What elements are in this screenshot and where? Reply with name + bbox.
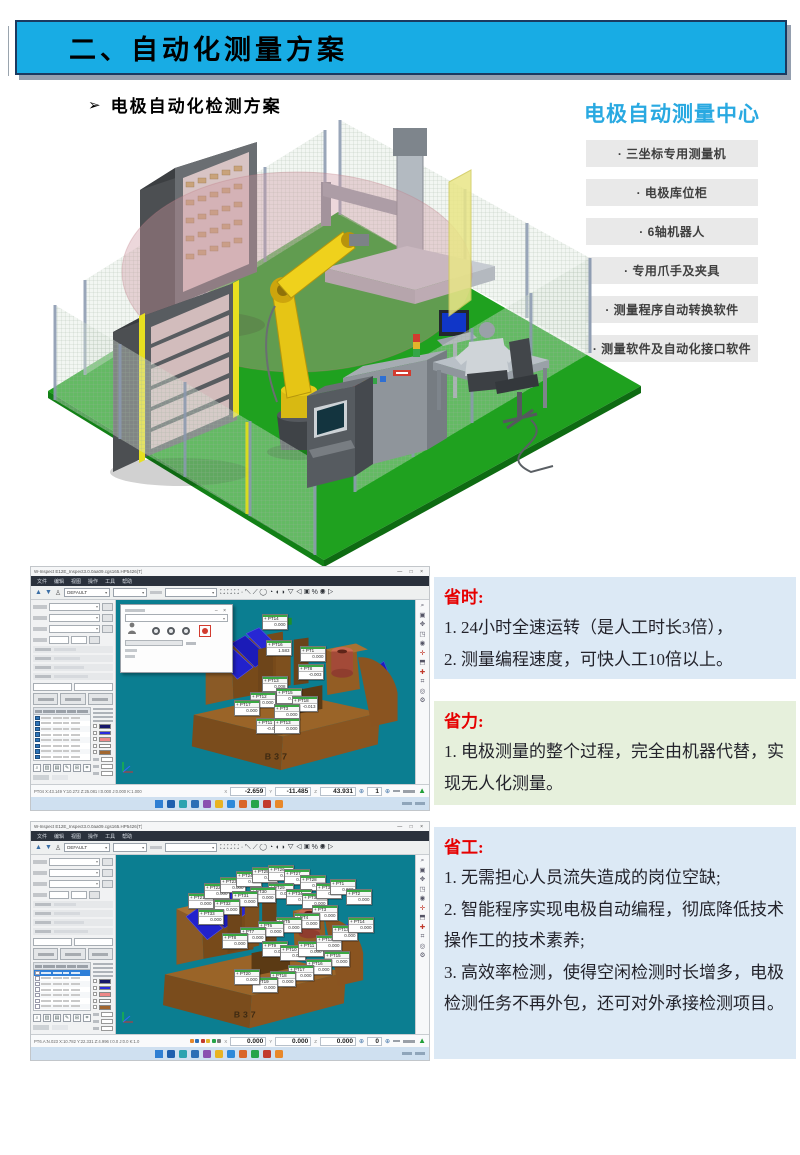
section-title: 二、自动化测量方案 (17, 28, 348, 67)
row-checkbox[interactable] (35, 732, 40, 737)
color-row (93, 986, 113, 991)
color-checkbox[interactable] (93, 750, 97, 754)
taskbar-app-icon[interactable] (155, 1050, 163, 1058)
results-area (33, 707, 113, 761)
cell-text (53, 1000, 62, 1002)
menu-item[interactable]: 帮助 (122, 833, 132, 840)
tip-combo[interactable]: ▾ (113, 843, 147, 852)
table-side-panel (93, 962, 113, 1011)
point-name: + PT16 (267, 641, 291, 648)
panel-tab[interactable] (52, 1025, 68, 1030)
button-label (65, 953, 81, 956)
coordinate-value: 0.000 (320, 1037, 356, 1046)
color-row (93, 999, 113, 1004)
pan-icon[interactable]: ✥ (420, 622, 425, 628)
cell-text (63, 750, 69, 752)
button-label (65, 698, 81, 701)
point-deviation: 0.000 (235, 977, 259, 984)
row-checkbox[interactable] (35, 1004, 40, 1009)
color-swatch (99, 1005, 111, 1010)
taskbar-app-icon[interactable] (167, 1050, 175, 1058)
color-swatch (99, 999, 111, 1004)
taskbar-app-icon[interactable] (263, 800, 271, 808)
cell-text (53, 739, 62, 741)
program-combo[interactable]: ▾ (125, 614, 228, 622)
color-checkbox[interactable] (93, 724, 97, 728)
info-row (33, 673, 113, 680)
zoom-icon[interactable]: ⌕ (421, 603, 425, 609)
row-checkbox[interactable] (35, 993, 40, 998)
dialog-titlebar: – × (125, 607, 228, 614)
play-control-button[interactable] (152, 627, 160, 635)
panel-tool-icon[interactable]: ▤ (53, 764, 61, 772)
panel-tool-icon[interactable]: ⌕ (33, 1014, 41, 1022)
pan-icon[interactable]: ✥ (420, 877, 425, 883)
status-readout: PT04 X:43.149 Y:10.272 Z:25.081 I:0.000 … (34, 789, 221, 794)
cell-3d-illustration (25, 120, 643, 567)
measure-point-label: + PT140.000 (348, 917, 374, 933)
info-label (35, 657, 51, 660)
nav-arrow-icon[interactable]: ▼ (45, 589, 52, 596)
benefit-box-save-labor: 省工: 1. 无需担心人员流失造成的岗位空缺; 2. 智能程序实现电极自动编程，… (434, 827, 796, 1059)
benefit-line: 1. 24小时全速运转（是人工时长3倍）， (444, 612, 784, 644)
cell-text (71, 717, 80, 719)
probe-icon[interactable]: ✛ (420, 651, 425, 657)
row-checkbox[interactable] (35, 749, 40, 754)
cell-text (63, 717, 69, 719)
tray-text (402, 1052, 412, 1055)
info-label (35, 903, 51, 906)
benefit-line: 2. 测量编程速度，可快人工10倍以上。 (444, 644, 784, 676)
field-button[interactable] (102, 603, 113, 611)
taskbar-app-icon[interactable] (155, 800, 163, 808)
field-button[interactable] (89, 891, 100, 899)
report-icon[interactable]: ⌗ (421, 679, 425, 685)
window-controls[interactable]: — □ × (397, 824, 426, 830)
measure-progress-dialog: – ×▾ (120, 604, 233, 673)
alarm-bell-icon[interactable]: ▲ (418, 787, 426, 795)
panel-tool-icon[interactable]: ⌗ (83, 1014, 91, 1022)
point-deviation: 0.000 (263, 622, 287, 629)
panel-icon-row: ⌕▥▤✎⊞⌗ (33, 763, 113, 773)
color-checkbox[interactable] (93, 1005, 97, 1009)
taskbar-app-icon[interactable] (275, 800, 283, 808)
gear-icon[interactable]: ⚙ (420, 953, 426, 959)
dialog-close-icon[interactable]: – × (215, 608, 228, 614)
point-name: + PT8 (223, 934, 247, 941)
row-checkbox[interactable] (35, 987, 40, 992)
tip-combo[interactable]: ▾ (113, 588, 147, 597)
main-toolbar: ▲▼♙DEFAULT▾▾▾⛶⛶⛶·↖⟋◯◔◖◗▽◁▣%◉▷ (31, 841, 429, 855)
zoom-icon[interactable]: ⌕ (421, 858, 425, 864)
window-body: ▾▾▾⌕▥▤✎⊞⌗ B37 + PT140.000+ PT161.583+ PT… (31, 600, 429, 784)
side-mini-button[interactable] (93, 708, 113, 710)
axis-letter: Z (314, 1039, 317, 1044)
side-mini-button[interactable] (93, 967, 113, 969)
cell-text (71, 994, 80, 996)
param-field-row (33, 635, 113, 644)
cell-text (63, 734, 69, 736)
taskbar-app-icon[interactable] (191, 800, 199, 808)
alarm-bell-icon[interactable]: ▲ (418, 1037, 426, 1045)
target-icon[interactable]: ◎ (420, 689, 426, 695)
panel-tab-active[interactable] (33, 1025, 49, 1030)
color-checkbox[interactable] (93, 744, 97, 748)
section-icon[interactable]: ⬒ (419, 660, 425, 666)
field-button[interactable] (102, 625, 113, 633)
field-dropdown[interactable]: ▾ (49, 614, 100, 622)
graphics-viewport[interactable]: B37 + PT210.000+ PT220.000+ PT230.000+ P… (116, 855, 415, 1034)
probe-count: 1 (367, 787, 382, 796)
field-label (33, 860, 47, 864)
toolbar-label (150, 591, 162, 594)
shade-icon[interactable]: ◉ (420, 641, 426, 647)
taskbar-tray (402, 802, 425, 805)
probe-icon[interactable]: ✛ (420, 906, 425, 912)
point-deviation: 0.000 (317, 943, 341, 950)
color-row (93, 750, 113, 755)
yellow-screen-panel (449, 170, 471, 316)
taskbar-app-icon[interactable] (191, 1050, 199, 1058)
table-header (34, 708, 90, 715)
field-input[interactable] (49, 891, 69, 899)
field-input[interactable] (49, 636, 69, 644)
color-checkbox[interactable] (93, 979, 97, 983)
target-icon[interactable]: ◎ (420, 944, 426, 950)
report-button[interactable] (88, 948, 113, 960)
benefit-line: 2. 智能程序实现电极自动编程，彻底降低技术操作工的技术素养; (444, 894, 784, 957)
row-checkbox[interactable] (35, 976, 40, 981)
side-mini-button[interactable] (93, 720, 113, 722)
table-row[interactable] (34, 1009, 90, 1011)
info-label (35, 921, 51, 924)
window-titlebar: W-Inspect E12E_Inspect3.0.0aa09.cgs165.H… (31, 567, 429, 576)
status-bar: PT04 X:43.149 Y:10.272 Z:25.081 I:0.000 … (31, 784, 429, 797)
run-button[interactable] (33, 693, 58, 705)
report-icon[interactable]: ⌗ (421, 934, 425, 940)
panel-tool-icon[interactable]: ⊞ (73, 1014, 81, 1022)
windows-taskbar (31, 1047, 429, 1060)
cell-text (71, 728, 80, 730)
operator-icon (127, 622, 137, 640)
nav-arrow-icon[interactable]: ▼ (45, 844, 52, 851)
field-button[interactable] (102, 858, 113, 866)
side-mini-button[interactable] (93, 716, 113, 718)
coordsys-combo[interactable]: ▾ (165, 843, 217, 852)
graphics-viewport[interactable]: B37 + PT140.000+ PT161.583+ PT10.000+ PT… (116, 600, 415, 784)
panel-tabs (33, 1025, 113, 1032)
measure-point-label: + PT130.000 (274, 718, 300, 734)
cell-text (63, 977, 69, 979)
field-dropdown[interactable]: ▾ (49, 869, 100, 877)
search-row (33, 682, 113, 691)
button-label (92, 953, 108, 956)
cell-text (63, 1005, 69, 1007)
menu-item[interactable]: 视图 (71, 833, 81, 840)
search-input[interactable] (33, 938, 72, 946)
axis-letter: Y (269, 789, 272, 794)
panel-tab[interactable] (52, 775, 68, 780)
param-field-row: ▾ (33, 857, 113, 866)
menu-item[interactable]: 帮助 (122, 578, 132, 585)
param-field-row: ▾ (33, 879, 113, 888)
section-icon[interactable]: ⬒ (419, 915, 425, 921)
point-deviation: 0.000 (275, 726, 299, 733)
color-row (93, 979, 113, 984)
field-label (33, 882, 47, 886)
row-checkbox[interactable] (35, 727, 40, 732)
taskbar-app-icon[interactable] (215, 1050, 223, 1058)
measure-point-label: + PT161.583 (266, 640, 292, 656)
point-name: + PT14 (349, 918, 373, 925)
globe-icon: ⊕ (359, 788, 364, 795)
coordinate-value: -2.659 (230, 787, 266, 796)
cell-text (53, 994, 62, 996)
feature-tool-icons[interactable]: ⛶⛶⛶·↖⟋◯◔◖◗▽◁▣%◉▷ (220, 844, 336, 852)
row-checkbox[interactable] (35, 999, 40, 1004)
nav-arrow-icon[interactable]: ▲ (35, 589, 42, 596)
filter-input[interactable] (74, 938, 113, 946)
slide-page: 二、自动化测量方案 ➢ 电极自动化检测方案 电极自动测量中心 · 三坐标专用测量… (0, 0, 800, 1155)
search-input[interactable] (33, 683, 72, 691)
menu-item[interactable]: 视图 (71, 578, 81, 585)
window-title: W-Inspect E12E_Inspect3.0.0aa09.cgs165.H… (34, 569, 142, 574)
shade-icon[interactable]: ◉ (420, 896, 426, 902)
point-deviation: 1.583 (267, 648, 291, 655)
probe-person-icon[interactable]: ♙ (55, 844, 61, 852)
panel-tool-icon[interactable]: ⌕ (33, 764, 41, 772)
rotate-icon[interactable]: ◳ (419, 887, 425, 893)
field-input[interactable] (71, 636, 87, 644)
pause-button[interactable] (60, 948, 85, 960)
dialog-controls (125, 622, 228, 640)
point-name: + PT13 (275, 719, 299, 726)
info-label (35, 648, 51, 651)
field-button[interactable] (102, 869, 113, 877)
point-deviation: 0.000 (235, 708, 259, 715)
menu-item[interactable]: 操作 (88, 578, 98, 585)
taskbar-app-icon[interactable] (227, 800, 235, 808)
cell-text (41, 717, 51, 719)
window-title: W-Inspect E12E_Inspect3.0.0aa09.cgs165.H… (34, 824, 142, 829)
cell-text (71, 739, 80, 741)
pause-button[interactable] (60, 693, 85, 705)
taskbar-app-icon[interactable] (203, 1050, 211, 1058)
align-icon[interactable]: ✚ (420, 670, 425, 676)
color-swatch (99, 731, 111, 736)
cell-text (63, 739, 69, 741)
button-label (38, 953, 54, 956)
point-name: + PT1 (301, 647, 325, 654)
probe-person-icon[interactable]: ♙ (55, 589, 61, 597)
point-name: + PT31 (233, 892, 257, 899)
panel-tab-active[interactable] (33, 775, 49, 780)
rotate-icon[interactable]: ◳ (419, 632, 425, 638)
play-control-button[interactable] (167, 627, 175, 635)
param-field-row (33, 890, 113, 899)
panel-tool-icon[interactable]: ⊞ (73, 764, 81, 772)
window-body: ▾▾▾⌕▥▤✎⊞⌗ B37 + PT210.000+ PT220.000+ PT… (31, 855, 429, 1034)
side-mini-button[interactable] (93, 712, 113, 714)
measure-point-label: + PT170.000 (234, 700, 260, 716)
measure-point-label: + PT140.000 (262, 614, 288, 630)
status-bar: PT6.A:N.023 X:10.782 Y:22.331 Z:4.996 I:… (31, 1034, 429, 1047)
taskbar-app-icon[interactable] (263, 1050, 271, 1058)
info-row (33, 910, 113, 917)
field-dropdown[interactable]: ▾ (49, 880, 100, 888)
field-button[interactable] (102, 880, 113, 888)
panel-tool-icon[interactable]: ▥ (43, 764, 51, 772)
play-control-button[interactable] (182, 627, 190, 635)
probe-combo[interactable]: DEFAULT▾ (64, 843, 110, 852)
table-row[interactable] (34, 760, 90, 761)
align-icon[interactable]: ✚ (420, 925, 425, 931)
cell-text (63, 989, 69, 991)
report-button[interactable] (88, 693, 113, 705)
action-button-row (33, 948, 113, 960)
button-label (38, 698, 54, 701)
parameter-panel: ▾▾▾⌕▥▤✎⊞⌗ (31, 855, 116, 1034)
row-checkbox[interactable] (35, 982, 40, 987)
taskbar-app-icon[interactable] (239, 1050, 247, 1058)
taskbar-app-icon[interactable] (227, 1050, 235, 1058)
row-checkbox[interactable] (35, 744, 40, 749)
panel-tool-icon[interactable]: ⌗ (83, 764, 91, 772)
user-label (403, 1040, 415, 1043)
taskbar-app-icon[interactable] (167, 800, 175, 808)
side-mini-button[interactable] (93, 971, 113, 973)
cell-text (53, 989, 62, 991)
menu-item[interactable]: 工具 (105, 833, 115, 840)
benefit-line: 3. 高效率检测，使得空闲检测时长增多，电极检测任务不再外包，还可对外承接检测项… (444, 957, 784, 1020)
cell-text (71, 745, 80, 747)
color-checkbox[interactable] (93, 992, 97, 996)
info-row (33, 928, 113, 935)
field-input[interactable] (71, 891, 87, 899)
feature-tool-icons[interactable]: ⛶⛶⛶·↖⟋◯◔◖◗▽◁▣%◉▷ (220, 589, 336, 597)
fit-view-icon[interactable]: ▣ (419, 868, 425, 874)
taskbar-app-icon[interactable] (251, 800, 259, 808)
menu-item[interactable]: 工具 (105, 578, 115, 585)
globe-icon: ⊕ (385, 788, 390, 795)
cell-text (63, 972, 69, 974)
color-checkbox[interactable] (93, 986, 97, 990)
side-mini-button[interactable] (93, 963, 113, 965)
menu-item[interactable]: 文件 (37, 578, 47, 585)
cell-text (41, 1005, 51, 1007)
field-button[interactable] (102, 614, 113, 622)
point-name: + PT15 (325, 952, 349, 959)
coordinate-value: 0.000 (275, 1037, 311, 1046)
color-row (93, 731, 113, 736)
point-name: + PT15 (277, 689, 301, 696)
menu-item[interactable]: 文件 (37, 833, 47, 840)
row-checkbox[interactable] (35, 738, 40, 743)
point-deviation: 0.000 (253, 985, 277, 992)
side-mini-button[interactable] (93, 975, 113, 977)
field-dropdown[interactable]: ▾ (49, 603, 100, 611)
taskbar-app-icon[interactable] (179, 800, 187, 808)
taskbar-app-icon[interactable] (251, 1050, 259, 1058)
info-row (33, 901, 113, 908)
row-checkbox[interactable] (35, 1010, 40, 1011)
measure-point-label: + PT200.000 (234, 969, 260, 985)
color-checkbox[interactable] (93, 731, 97, 735)
button-label (92, 698, 108, 701)
cell-text (41, 989, 51, 991)
measure-point-label: + PT10.000 (300, 646, 326, 662)
record-button[interactable] (199, 625, 211, 637)
cell-text (53, 717, 62, 719)
color-checkbox[interactable] (93, 999, 97, 1003)
field-dropdown[interactable]: ▾ (49, 858, 100, 866)
cell-text (41, 983, 51, 985)
cell-text (63, 722, 69, 724)
menu-item[interactable]: 编辑 (54, 578, 64, 585)
color-swatch (99, 750, 111, 755)
point-name: + PT18 (293, 697, 317, 704)
cell-text (71, 1005, 80, 1007)
panel-tool-icon[interactable]: ▥ (43, 1014, 51, 1022)
taskbar-icons (155, 800, 283, 808)
tray-clock (415, 1052, 425, 1055)
taskbar-app-icon[interactable] (179, 1050, 187, 1058)
probe-combo[interactable]: DEFAULT▾ (64, 588, 110, 597)
info-row (33, 646, 113, 653)
point-deviation: 0.000 (189, 901, 213, 908)
window-controls[interactable]: — □ × (397, 569, 426, 575)
panel-tool-icon[interactable]: ▤ (53, 1014, 61, 1022)
nav-arrow-icon[interactable]: ▲ (35, 844, 42, 851)
taskbar-app-icon[interactable] (215, 800, 223, 808)
benefit-box-save-time: 省时: 1. 24小时全速运转（是人工时长3倍）， 2. 测量编程速度，可快人工… (434, 577, 796, 679)
coordinate-value: 43.931 (320, 787, 356, 796)
cell-text (71, 734, 80, 736)
point-name: + PT12 (251, 693, 275, 700)
row-checkbox[interactable] (35, 755, 40, 760)
fit-view-icon[interactable]: ▣ (419, 613, 425, 619)
panel-tool-icon[interactable]: ✎ (63, 764, 71, 772)
color-checkbox[interactable] (93, 737, 97, 741)
row-checkbox[interactable] (35, 716, 40, 721)
coordsys-combo[interactable]: ▾ (165, 588, 217, 597)
menu-item[interactable]: 编辑 (54, 833, 64, 840)
run-button[interactable] (33, 948, 58, 960)
taskbar-app-icon[interactable] (203, 800, 211, 808)
gear-icon[interactable]: ⚙ (420, 698, 426, 704)
filter-input[interactable] (74, 683, 113, 691)
field-button[interactable] (89, 636, 100, 644)
field-label (33, 638, 47, 642)
row-checkbox[interactable] (35, 971, 40, 976)
panel-tool-icon[interactable]: ✎ (63, 1014, 71, 1022)
taskbar-app-icon[interactable] (239, 800, 247, 808)
tol-input[interactable] (101, 757, 113, 762)
field-label (33, 893, 47, 897)
cell-text (63, 745, 69, 747)
user-label (403, 790, 415, 793)
field-dropdown[interactable]: ▾ (49, 625, 100, 633)
row-checkbox[interactable] (35, 721, 40, 726)
taskbar-app-icon[interactable] (275, 1050, 283, 1058)
menu-item[interactable]: 操作 (88, 833, 98, 840)
color-row (93, 744, 113, 749)
info-value (54, 930, 88, 933)
cell-text (41, 1000, 51, 1002)
row-checkbox[interactable] (35, 760, 40, 761)
benefit-line: 1. 电极测量的整个过程，完全由机器代替，实现无人化测量。 (444, 736, 784, 799)
point-name: + PT32 (215, 900, 239, 907)
